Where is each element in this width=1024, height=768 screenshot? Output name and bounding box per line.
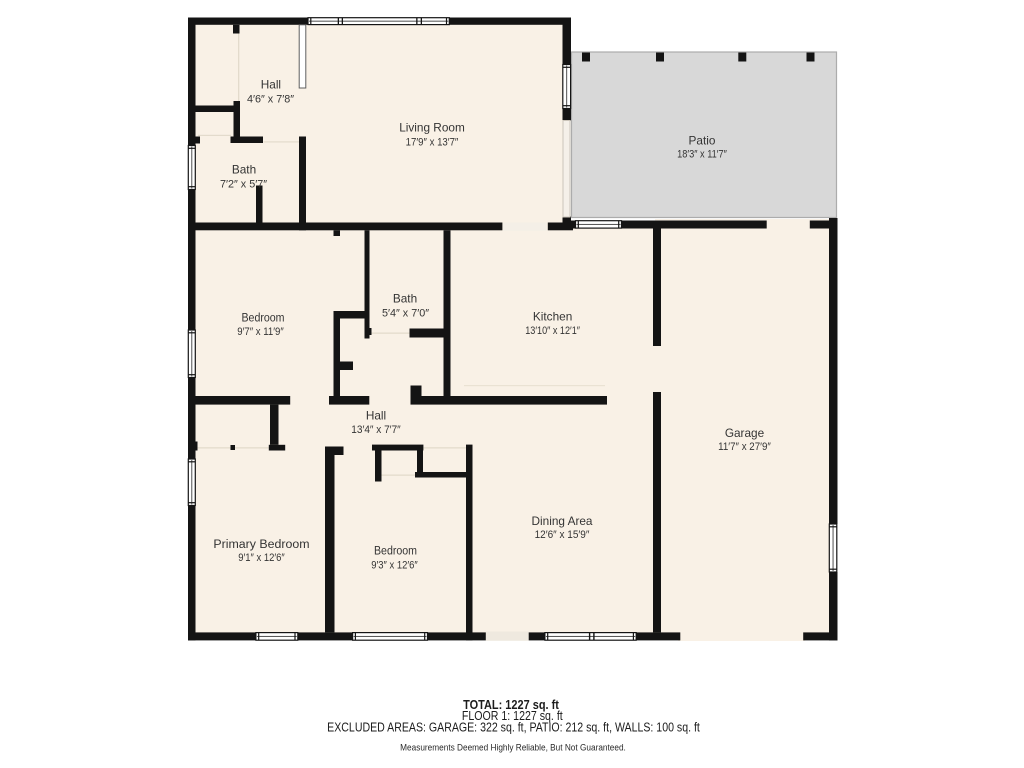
svg-text:9′1″ x 12′6″: 9′1″ x 12′6″: [238, 552, 285, 564]
svg-text:Patio: Patio: [689, 133, 716, 147]
svg-text:Bedroom: Bedroom: [241, 312, 284, 325]
svg-text:Bath: Bath: [393, 291, 417, 305]
svg-text:12′6″ x 15′9″: 12′6″ x 15′9″: [535, 530, 590, 541]
svg-text:Kitchen: Kitchen: [533, 309, 572, 323]
svg-text:Hall: Hall: [366, 408, 386, 422]
svg-text:Measurements Deemed Highly Rel: Measurements Deemed Highly Reliable, But…: [400, 742, 626, 753]
svg-text:Primary Bedroom: Primary Bedroom: [213, 537, 309, 551]
svg-text:4′6″ x 7′8″: 4′6″ x 7′8″: [247, 93, 294, 105]
svg-text:13′10″ x 12′1″: 13′10″ x 12′1″: [525, 325, 580, 337]
svg-text:Bath: Bath: [232, 162, 256, 176]
svg-text:17′9″ x 13′7″: 17′9″ x 13′7″: [406, 137, 459, 149]
svg-text:Garage: Garage: [725, 426, 765, 440]
svg-text:Hall: Hall: [261, 77, 281, 91]
svg-text:11′7″ x 27′9″: 11′7″ x 27′9″: [718, 442, 771, 454]
svg-text:Living Room: Living Room: [399, 120, 465, 134]
svg-text:Dining Area: Dining Area: [532, 514, 593, 528]
svg-text:EXCLUDED AREAS: GARAGE: 322 sq: EXCLUDED AREAS: GARAGE: 322 sq. ft, PATI…: [327, 720, 700, 735]
svg-text:9′3″ x 12′6″: 9′3″ x 12′6″: [371, 560, 418, 572]
svg-text:5′4″ x 7′0″: 5′4″ x 7′0″: [382, 308, 429, 320]
svg-text:18′3″ x 11′7″: 18′3″ x 11′7″: [677, 149, 727, 161]
svg-text:9′7″ x 11′9″: 9′7″ x 11′9″: [237, 327, 284, 339]
svg-text:13′4″ x 7′7″: 13′4″ x 7′7″: [351, 425, 401, 436]
svg-text:7′2″ x 5′7″: 7′2″ x 5′7″: [220, 179, 267, 191]
svg-text:Bedroom: Bedroom: [374, 545, 417, 558]
